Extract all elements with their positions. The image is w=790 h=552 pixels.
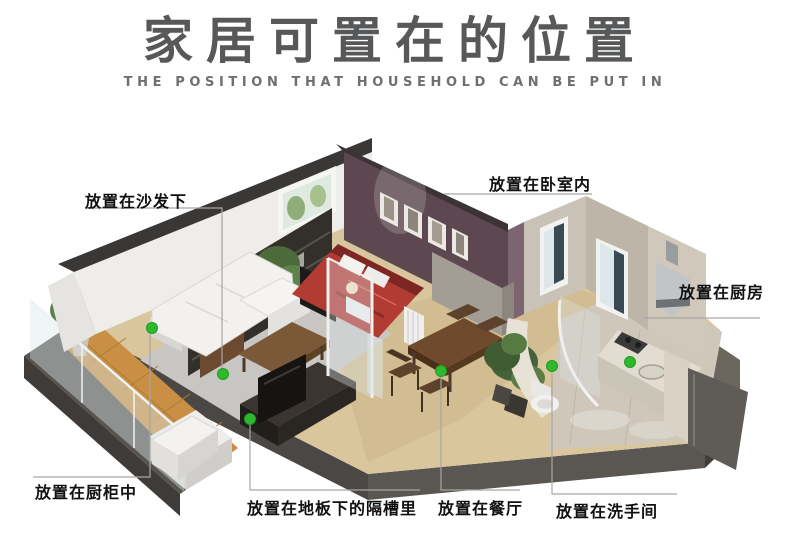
callout-bedroom: 放置在卧室内	[489, 171, 591, 195]
callout-sofa: 放置在沙发下	[85, 188, 187, 212]
marker-cupboard	[147, 323, 158, 334]
callout-floor-slot: 放置在地板下的隔槽里	[247, 495, 417, 519]
glass-partition	[328, 258, 372, 398]
apartment-illustration	[0, 0, 790, 552]
marker-kitchen	[625, 357, 636, 368]
callout-cupboard: 放置在厨柜中	[35, 479, 137, 503]
marker-dining	[436, 366, 447, 377]
callout-dining: 放置在餐厅	[438, 495, 523, 519]
poster: 家居可置在的位置 THE POSITION THAT HOUSEHOLD CAN…	[0, 0, 790, 552]
callout-bathroom: 放置在洗手间	[556, 498, 658, 522]
marker-floor-slot	[245, 414, 256, 425]
glass-column	[368, 334, 382, 398]
marker-bathroom	[547, 361, 558, 372]
marker-under-sofa	[218, 369, 229, 380]
callout-kitchen: 放置在厨房	[679, 279, 764, 303]
